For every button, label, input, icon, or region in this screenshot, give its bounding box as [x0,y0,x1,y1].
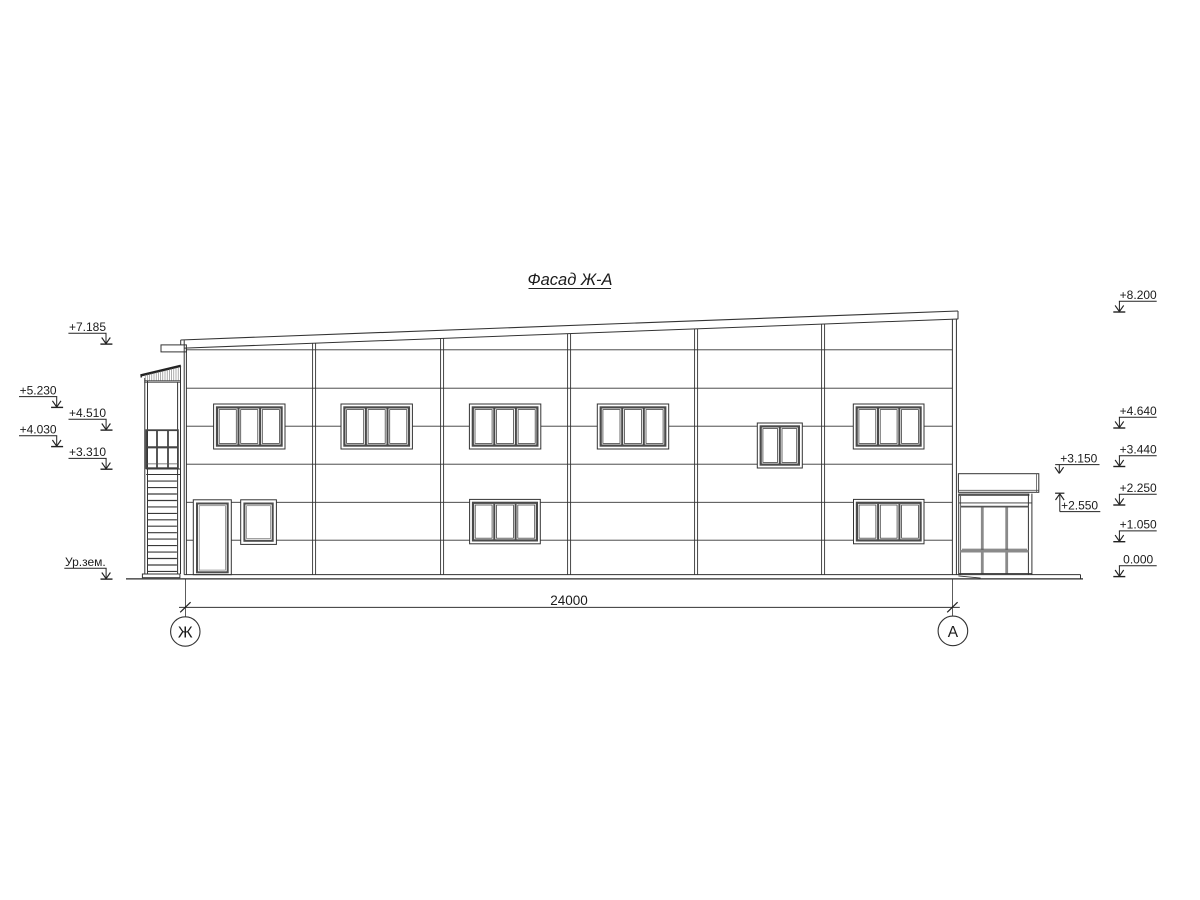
svg-text:Фасад Ж-А: Фасад Ж-А [527,271,612,289]
svg-text:+1.050: +1.050 [1120,518,1157,532]
svg-text:0.000: 0.000 [1123,553,1153,567]
svg-text:А: А [948,624,959,641]
svg-text:+5.230: +5.230 [20,383,57,397]
svg-text:24000: 24000 [550,593,588,608]
svg-text:+2.250: +2.250 [1120,481,1157,495]
svg-text:Ж: Ж [178,624,193,641]
svg-text:+3.440: +3.440 [1120,442,1157,456]
svg-text:+3.310: +3.310 [69,445,106,459]
svg-text:+4.510: +4.510 [69,406,106,420]
svg-text:+3.150: +3.150 [1060,451,1097,465]
svg-text:+4.030: +4.030 [20,423,57,437]
svg-text:Ур.зем.: Ур.зем. [65,555,106,569]
svg-text:+8.200: +8.200 [1120,288,1157,302]
svg-text:+4.640: +4.640 [1120,404,1157,418]
svg-text:+7.185: +7.185 [69,320,106,334]
svg-text:+2.550: +2.550 [1061,498,1098,512]
